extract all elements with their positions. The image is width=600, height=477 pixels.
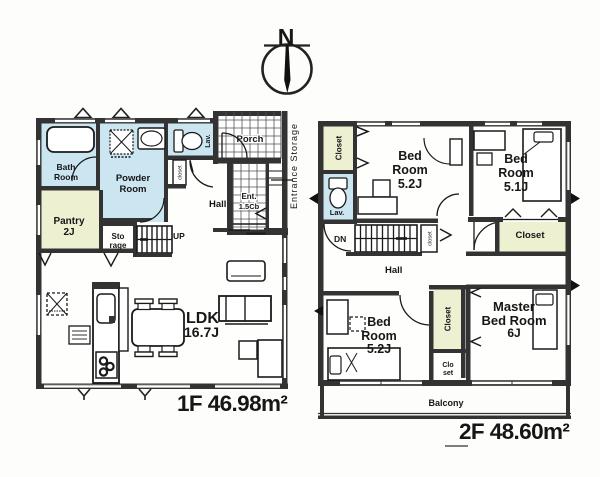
svg-text:Bed: Bed <box>367 315 391 329</box>
svg-text:2J: 2J <box>63 227 74 238</box>
svg-text:Ent.: Ent. <box>241 192 256 201</box>
svg-text:Clo: Clo <box>442 362 453 369</box>
svg-text:Closet: Closet <box>335 135 344 160</box>
svg-text:Balcony: Balcony <box>428 398 463 408</box>
svg-text:Powder: Powder <box>116 173 151 184</box>
svg-text:Pantry: Pantry <box>53 216 85 227</box>
svg-text:Entrance Storage: Entrance Storage <box>289 123 299 209</box>
svg-text:set: set <box>443 370 454 377</box>
svg-text:Lav.: Lav. <box>205 134 212 148</box>
svg-text:Bed: Bed <box>398 149 422 163</box>
svg-text:Sto: Sto <box>112 232 125 241</box>
svg-text:Room: Room <box>120 184 147 195</box>
svg-text:closet: closet <box>428 231 434 246</box>
svg-text:DN: DN <box>334 234 346 244</box>
svg-text:6J: 6J <box>507 326 520 340</box>
svg-text:Bath: Bath <box>57 162 76 172</box>
svg-text:Bed: Bed <box>504 152 528 166</box>
svg-text:16.7J: 16.7J <box>184 324 219 340</box>
svg-text:Closet: Closet <box>444 306 453 331</box>
svg-text:Master: Master <box>493 299 535 314</box>
svg-text:Hall: Hall <box>209 199 226 210</box>
svg-text:1F 46.98m²: 1F 46.98m² <box>177 391 288 416</box>
svg-text:1.5Cb: 1.5Cb <box>239 202 260 211</box>
svg-text:Room: Room <box>392 163 427 177</box>
svg-text:5.1J: 5.1J <box>504 180 528 194</box>
svg-text:Lav.: Lav. <box>330 208 344 217</box>
svg-text:Closet: Closet <box>515 230 545 241</box>
svg-text:Room: Room <box>498 166 533 180</box>
svg-text:UP: UP <box>173 231 185 241</box>
svg-text:5.2J: 5.2J <box>398 177 422 191</box>
svg-text:rage: rage <box>110 241 127 250</box>
svg-text:5.2J: 5.2J <box>367 342 391 356</box>
svg-text:closet: closet <box>178 165 184 180</box>
svg-text:Room: Room <box>54 172 79 182</box>
svg-text:Hall: Hall <box>385 265 402 276</box>
svg-text:Porch: Porch <box>237 134 264 145</box>
svg-text:Room: Room <box>361 329 396 343</box>
svg-text:2F 48.60m²: 2F 48.60m² <box>459 419 570 444</box>
